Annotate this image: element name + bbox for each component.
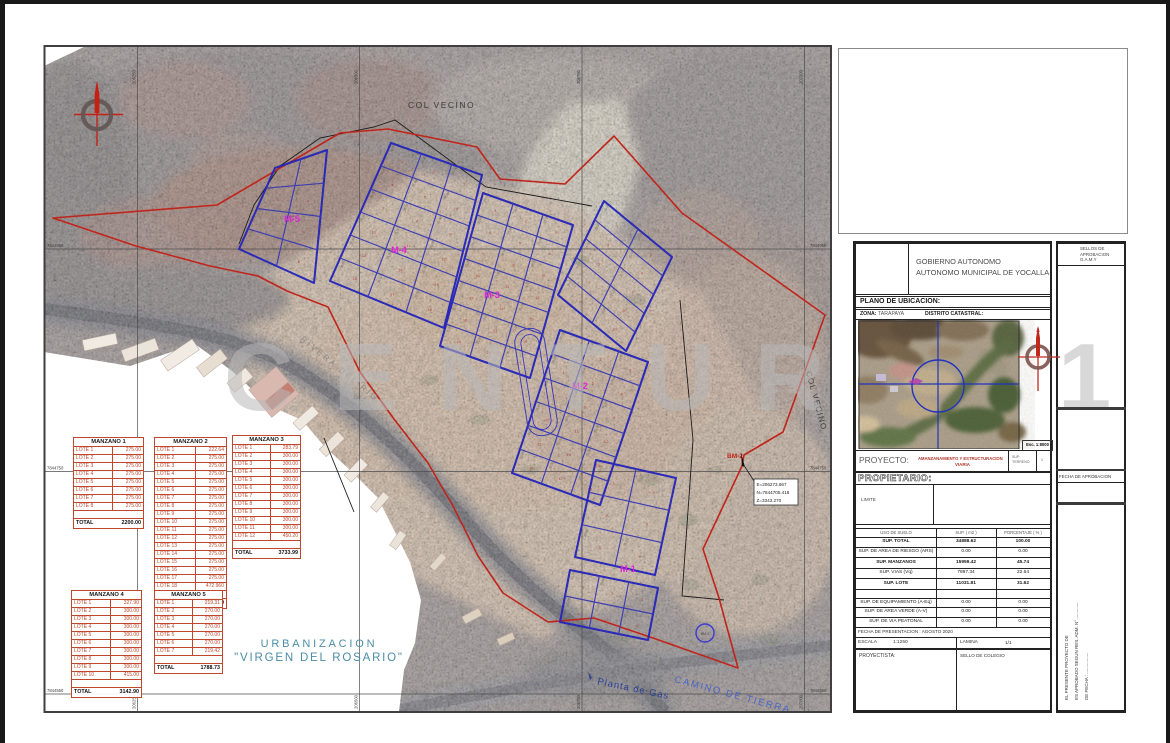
svg-text:BM-2: BM-2 [727,453,743,460]
svg-text:BM-1: BM-1 [701,632,710,636]
svg-text:14: 14 [499,306,504,311]
svg-text:14: 14 [566,452,571,457]
svg-text:16: 16 [529,465,534,470]
svg-text:10: 10 [371,229,376,234]
svg-text:COL VECINO: COL VECINO [408,100,475,110]
svg-text:E=206273.667: E=206273.667 [757,482,787,487]
svg-text:7844750: 7844750 [47,466,64,471]
svg-text:10: 10 [475,274,480,279]
svg-text:12: 12 [604,439,609,444]
svg-text:16: 16 [463,317,468,322]
svg-text:13: 13 [469,295,474,300]
svg-text:206500: 206500 [354,69,359,84]
svg-text:14: 14 [398,267,403,272]
svg-text:N=7844705.418: N=7844705.418 [757,490,790,495]
svg-text:15: 15 [529,317,534,322]
svg-text:12: 12 [441,257,446,262]
svg-text:7844550: 7844550 [47,688,64,693]
svg-text:206250: 206250 [132,69,137,84]
svg-text:15: 15 [434,282,439,287]
svg-text:16: 16 [352,276,357,281]
svg-text:M-4: M-4 [391,245,407,255]
svg-text:206750: 206750 [576,694,581,709]
svg-text:7844550: 7844550 [810,688,827,693]
svg-text:7844750: 7844750 [810,466,827,471]
svg-text:M-3: M-3 [484,290,500,300]
svg-text:17: 17 [558,476,563,481]
svg-text:207000: 207000 [799,694,804,709]
svg-text:M-1: M-1 [620,564,636,574]
svg-text:18: 18 [427,307,432,312]
svg-text:13: 13 [362,253,367,258]
svg-text:7844950: 7844950 [810,243,827,248]
svg-text:7844950: 7844950 [47,243,64,248]
svg-text:17: 17 [390,292,395,297]
svg-text:206750: 206750 [576,69,581,84]
svg-text:M-5: M-5 [284,214,300,224]
svg-text:Z=3343.270: Z=3343.270 [757,498,782,503]
svg-text:207000: 207000 [799,69,804,84]
svg-text:13: 13 [537,442,542,447]
svg-text:206500: 206500 [354,694,359,709]
svg-text:12: 12 [535,295,540,300]
